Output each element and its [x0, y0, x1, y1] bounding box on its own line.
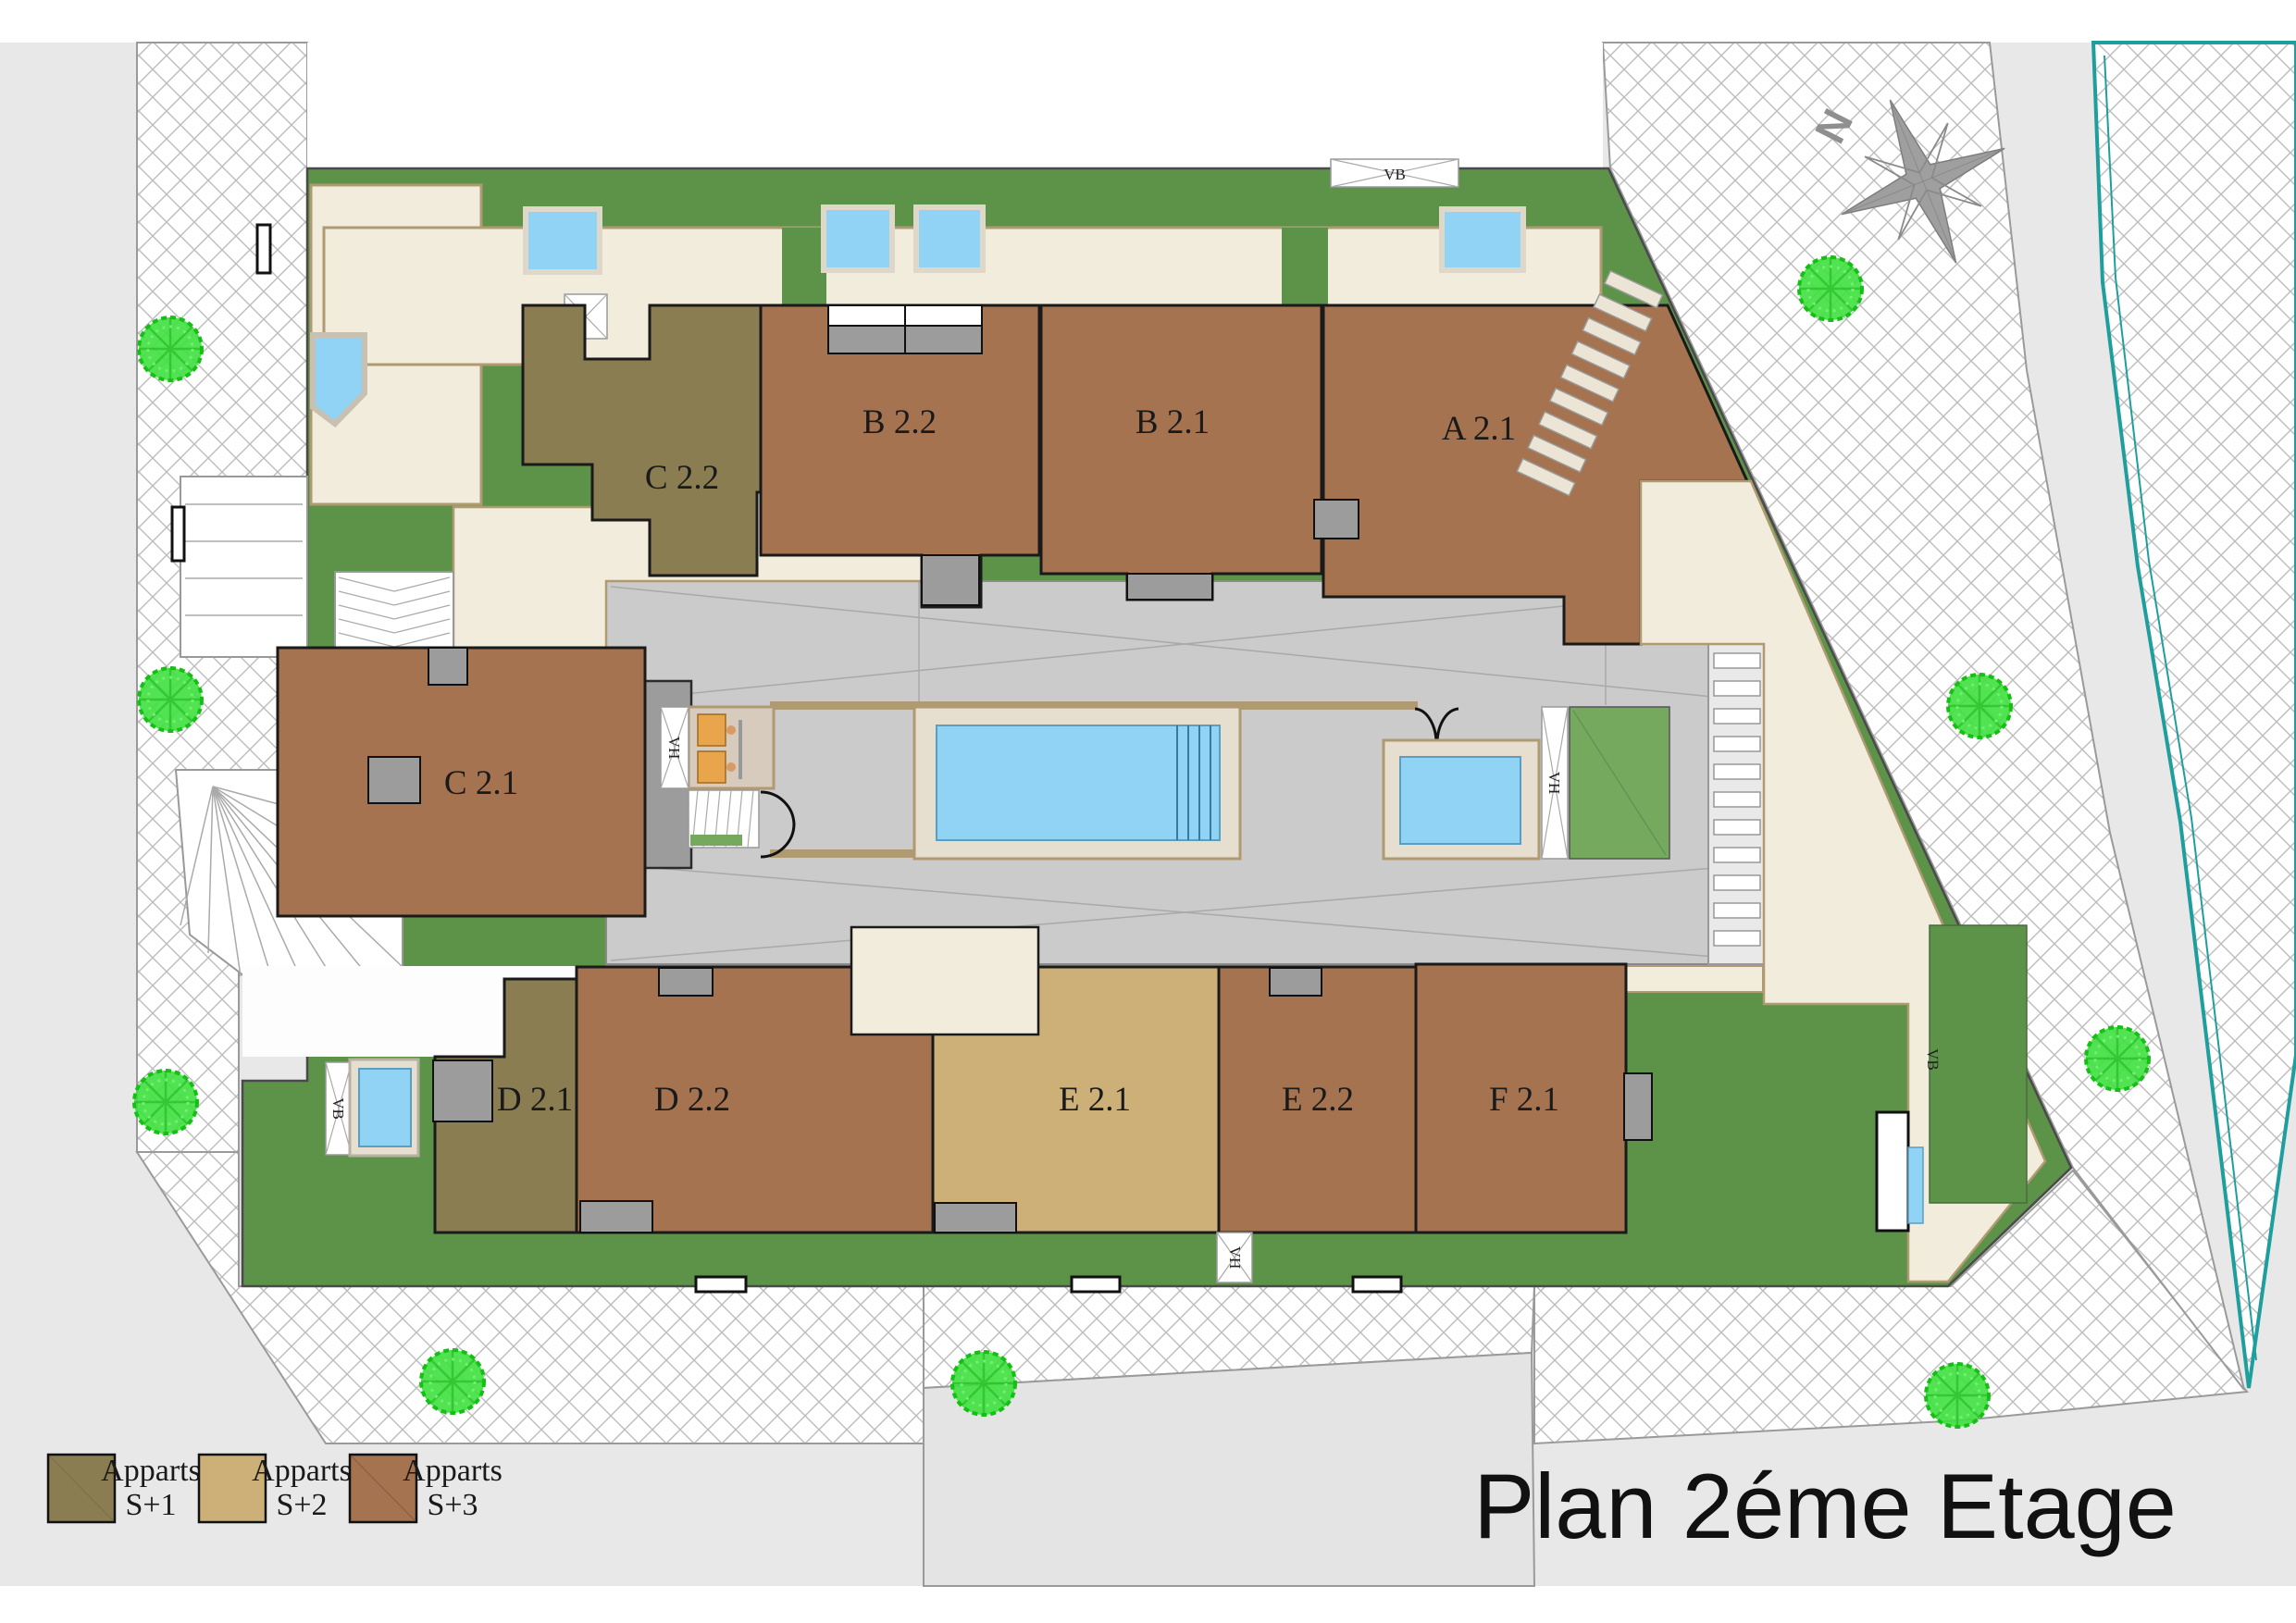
tree-icon: [952, 1352, 1015, 1415]
tree-icon: [134, 1071, 197, 1134]
legend-sublabel-s2: S+2: [276, 1488, 327, 1522]
tree-icon: [421, 1350, 484, 1413]
vb-label: VB: [329, 1097, 347, 1120]
floor-plan-page: VH VH: [0, 0, 2296, 1623]
apartment-label-C2.1: C 2.1: [444, 764, 518, 802]
vh-shaft-west: VH: [661, 707, 689, 788]
pool-hall-south-wall: [770, 849, 918, 858]
tree-icon: [1926, 1364, 1989, 1427]
west-door: [172, 507, 184, 561]
pool-hall-stair: [689, 790, 759, 848]
apartment-label-D2.2: D 2.2: [654, 1081, 730, 1119]
apartment-label-A2.1: A 2.1: [1442, 410, 1516, 448]
vh-label: VH: [1545, 772, 1563, 795]
southwest-pool: [350, 1059, 418, 1156]
east-lightwell: [1877, 1112, 1908, 1231]
apartment-label-D2.1: D 2.1: [497, 1081, 573, 1119]
tree-icon: [1799, 257, 1862, 320]
legend-sublabel-s3: S+3: [427, 1488, 478, 1522]
vh-shaft-south: VH: [1217, 1233, 1252, 1282]
legend-sublabel-s1: S+1: [125, 1488, 176, 1522]
vb-shaft-southwest: VB: [326, 1062, 352, 1155]
south-terrace-notch: [851, 927, 1038, 1035]
tree-icon: [1948, 675, 2011, 737]
apartment-label-E2.1: E 2.1: [1059, 1081, 1131, 1119]
mid-stair: [335, 572, 453, 648]
east-lawn: [1930, 925, 2027, 1203]
tree-icon: [139, 668, 202, 731]
stair-landing-mat: [690, 835, 742, 846]
tree-icon: [2086, 1027, 2149, 1090]
plan-title: Plan 2éme Etage: [1473, 1455, 2177, 1557]
secondary-pool: [1384, 740, 1539, 859]
vb-label: VB: [1924, 1048, 1942, 1071]
sink-fixture: [698, 714, 726, 746]
apartment-label-B2.1: B 2.1: [1136, 403, 1210, 441]
vb-shaft-north: VB: [1331, 159, 1458, 187]
legend-label-s2: Apparts: [252, 1454, 352, 1488]
floor-plan-drawing: VH VH: [0, 0, 2296, 1623]
pool-bathroom: [689, 707, 774, 788]
main-pool: [914, 707, 1240, 859]
sink-fixture: [698, 751, 726, 783]
apartment-B2.1: [1041, 305, 1322, 600]
vh-label: VH: [665, 737, 683, 760]
tree-icon: [139, 317, 202, 380]
vb-label: VB: [1384, 166, 1406, 183]
apartment-label-C2.2: C 2.2: [645, 459, 719, 497]
apartment-label-E2.2: E 2.2: [1282, 1081, 1354, 1119]
vh-label: VH: [1226, 1246, 1244, 1270]
apartment-label-F2.1: F 2.1: [1489, 1081, 1559, 1119]
east-plunge-pool: [1908, 1147, 1923, 1223]
legend-label-s1: Apparts: [101, 1454, 201, 1488]
vh-shaft-east: VH: [1542, 707, 1568, 859]
west-stairwell: [172, 477, 307, 657]
apartment-label-B2.2: B 2.2: [863, 403, 937, 441]
north-setback: [307, 43, 1603, 168]
legend-label-s3: Apparts: [403, 1454, 503, 1488]
